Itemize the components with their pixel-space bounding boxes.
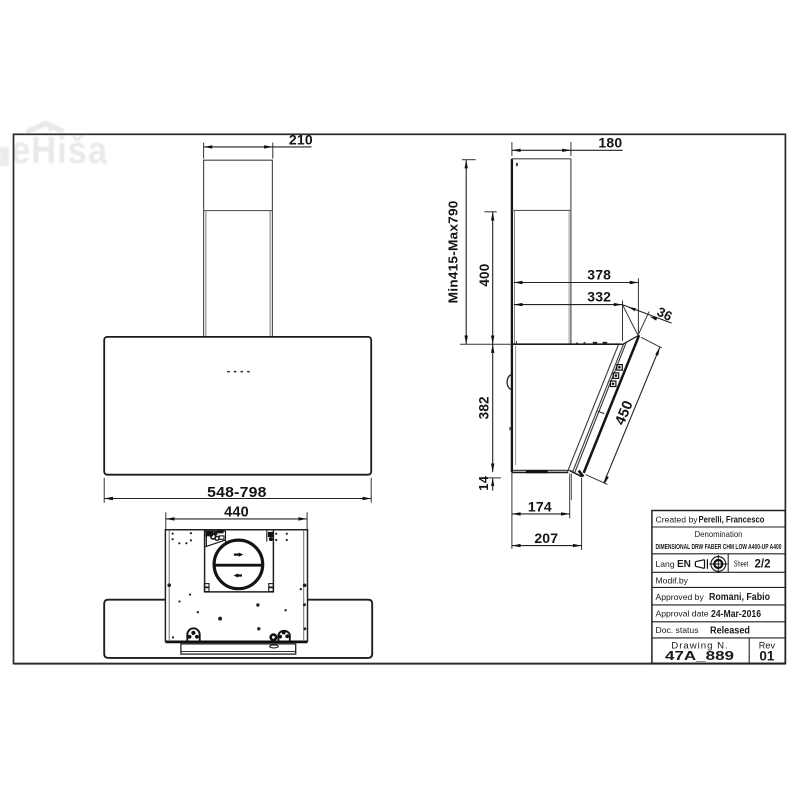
svg-text:Min415-Max790: Min415-Max790 — [446, 200, 461, 303]
svg-text:Denomination: Denomination — [695, 529, 743, 539]
svg-text:14: 14 — [476, 475, 491, 490]
svg-text:Released: Released — [710, 625, 750, 636]
svg-text:47A_889: 47A_889 — [665, 648, 734, 663]
svg-text:180: 180 — [598, 135, 622, 151]
svg-text:01: 01 — [759, 649, 775, 664]
svg-text:24-Mar-2016: 24-Mar-2016 — [711, 609, 761, 620]
svg-text:400: 400 — [477, 264, 492, 287]
svg-text:Approved by: Approved by — [656, 592, 705, 602]
svg-text:440: 440 — [224, 505, 249, 521]
svg-text:382: 382 — [476, 396, 491, 419]
svg-text:174: 174 — [528, 498, 552, 514]
svg-text:EN: EN — [677, 559, 691, 570]
svg-text:548-798: 548-798 — [207, 485, 267, 501]
svg-text:Perelli, Francesco: Perelli, Francesco — [699, 515, 765, 526]
svg-text:Approval date: Approval date — [656, 609, 709, 619]
svg-text:Romani, Fabio: Romani, Fabio — [709, 592, 770, 603]
svg-text:Created by: Created by — [656, 514, 699, 524]
svg-text:Modif.by: Modif.by — [656, 575, 689, 585]
svg-text:210: 210 — [289, 132, 313, 148]
svg-text:Doc. status: Doc. status — [656, 625, 699, 635]
svg-text:DIMENSIONAL DRW FABER CHM LOW: DIMENSIONAL DRW FABER CHM LOW A400-UP A4… — [656, 542, 782, 551]
svg-text:207: 207 — [534, 530, 558, 546]
svg-text:Lang: Lang — [656, 559, 675, 569]
svg-text:378: 378 — [587, 267, 611, 283]
svg-text:332: 332 — [587, 289, 611, 305]
svg-text:Sheet: Sheet — [734, 560, 749, 569]
svg-text:eHiša: eHiša — [11, 130, 108, 172]
svg-text:2/2: 2/2 — [755, 559, 771, 571]
